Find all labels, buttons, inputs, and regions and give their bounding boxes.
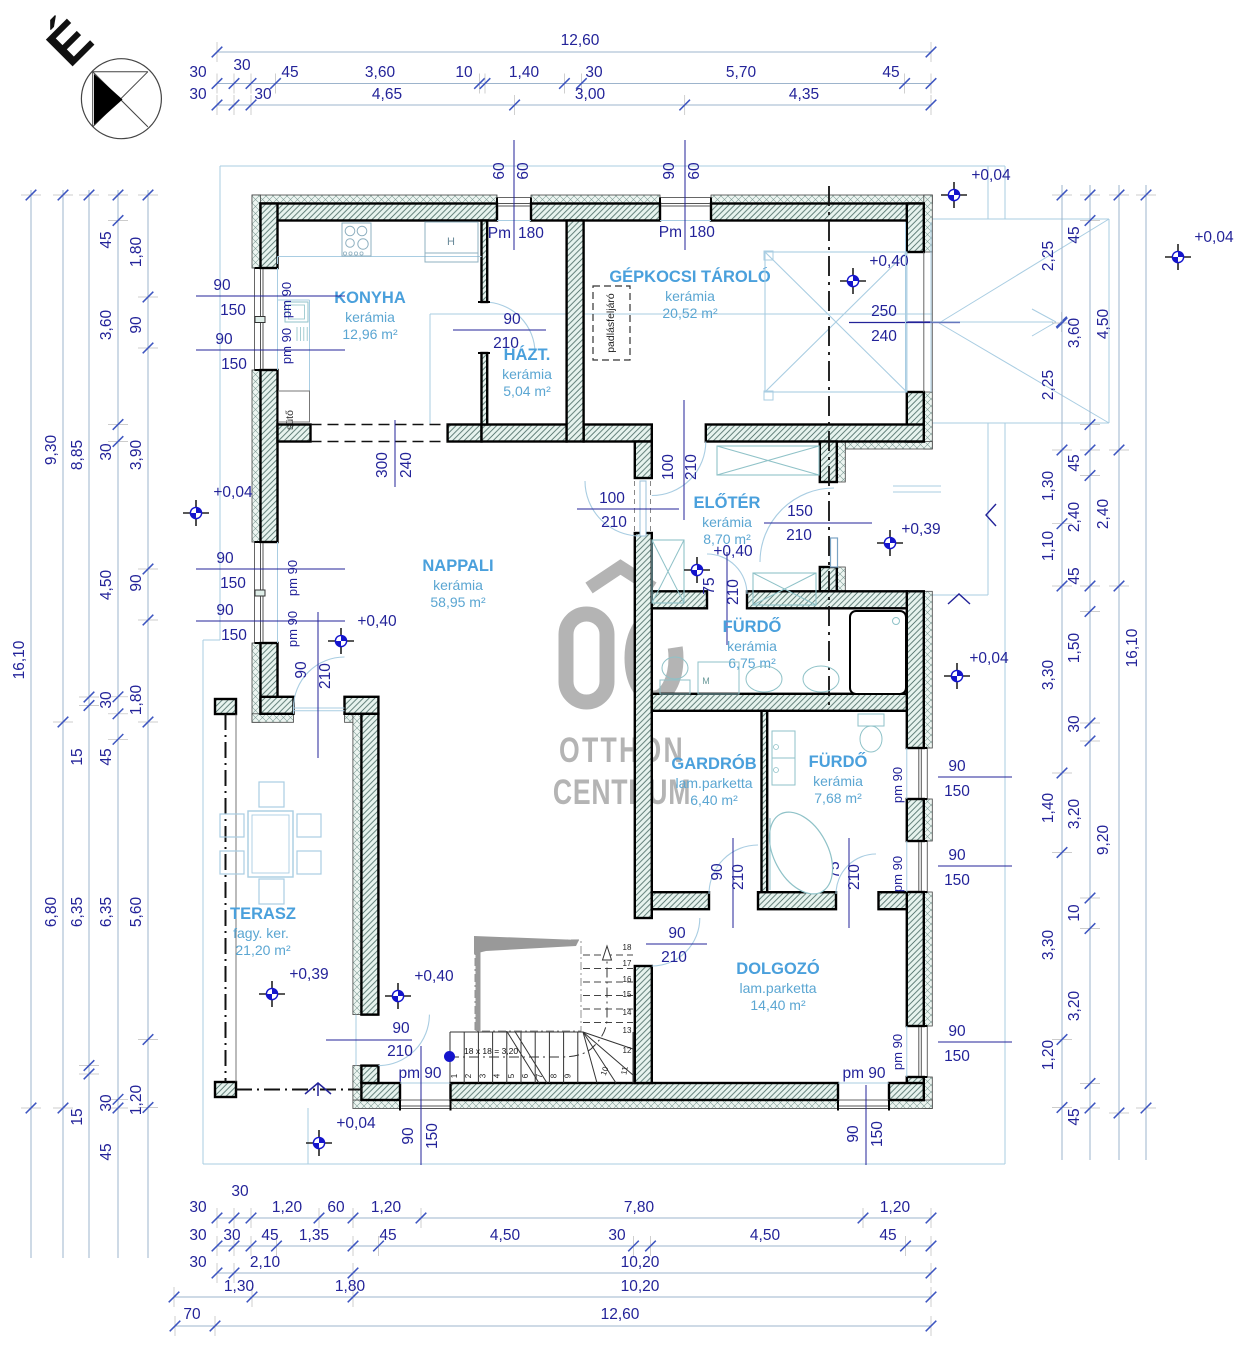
- svg-text:1,40: 1,40: [509, 64, 540, 81]
- svg-text:16,10: 16,10: [1124, 628, 1141, 667]
- svg-text:150: 150: [424, 1123, 441, 1149]
- svg-text:90: 90: [661, 162, 678, 180]
- svg-text:14,40 m²: 14,40 m²: [750, 997, 806, 1013]
- svg-text:45: 45: [1066, 226, 1083, 243]
- svg-text:58,95 m²: 58,95 m²: [430, 594, 486, 610]
- svg-text:2,40: 2,40: [1095, 499, 1112, 530]
- svg-text:15: 15: [69, 1108, 86, 1125]
- svg-text:+0,04: +0,04: [1194, 229, 1234, 246]
- svg-text:pm 90: pm 90: [285, 560, 300, 596]
- svg-text:4,50: 4,50: [1095, 309, 1112, 340]
- svg-text:90: 90: [128, 316, 145, 334]
- svg-text:kerámia: kerámia: [502, 366, 552, 382]
- svg-text:1,20: 1,20: [880, 1199, 911, 1216]
- svg-text:90: 90: [503, 311, 521, 328]
- svg-text:45: 45: [1066, 567, 1083, 584]
- svg-text:12,60: 12,60: [601, 1306, 640, 1323]
- svg-text:100: 100: [660, 454, 677, 480]
- svg-text:45: 45: [379, 1227, 396, 1244]
- svg-text:90: 90: [668, 925, 686, 942]
- svg-text:90: 90: [293, 661, 310, 679]
- svg-text:30: 30: [223, 1227, 241, 1244]
- svg-text:90: 90: [215, 331, 233, 348]
- svg-text:+0,40: +0,40: [713, 543, 753, 560]
- svg-text:45: 45: [98, 1143, 115, 1160]
- svg-text:60: 60: [491, 162, 508, 180]
- svg-text:210: 210: [846, 864, 863, 890]
- svg-text:15: 15: [69, 748, 86, 765]
- svg-text:300: 300: [374, 452, 391, 478]
- svg-text:1,50: 1,50: [1066, 633, 1083, 664]
- svg-text:+0,40: +0,40: [869, 253, 909, 270]
- svg-text:90: 90: [128, 574, 145, 592]
- svg-text:HÁZT.: HÁZT.: [504, 345, 551, 364]
- svg-text:3,90: 3,90: [128, 440, 145, 471]
- svg-text:2,40: 2,40: [1066, 502, 1083, 533]
- svg-text:kerámia: kerámia: [727, 638, 777, 654]
- svg-text:1,20: 1,20: [371, 1199, 402, 1216]
- svg-text:30: 30: [233, 57, 251, 74]
- svg-text:90: 90: [213, 277, 231, 294]
- svg-text:7,80: 7,80: [624, 1199, 655, 1216]
- svg-text:30: 30: [189, 1199, 207, 1216]
- svg-text:10,20: 10,20: [621, 1278, 660, 1295]
- svg-text:60: 60: [686, 162, 703, 180]
- svg-text:fagy. ker.: fagy. ker.: [233, 925, 289, 941]
- svg-text:30: 30: [98, 691, 115, 709]
- svg-text:5: 5: [507, 1073, 516, 1078]
- svg-text:sütő: sütő: [284, 410, 296, 430]
- svg-text:CENTRUM: CENTRUM: [553, 772, 691, 811]
- svg-text:3: 3: [478, 1073, 487, 1078]
- svg-text:kerámia: kerámia: [665, 288, 715, 304]
- svg-text:1,80: 1,80: [335, 1278, 366, 1295]
- svg-text:90: 90: [400, 1127, 417, 1145]
- svg-text:lam.parketta: lam.parketta: [675, 775, 752, 791]
- svg-text:1,20: 1,20: [272, 1199, 303, 1216]
- svg-text:45: 45: [882, 64, 899, 81]
- svg-text:90: 90: [948, 1023, 966, 1040]
- svg-text:240: 240: [871, 328, 897, 345]
- svg-text:4,50: 4,50: [750, 1227, 781, 1244]
- svg-text:30: 30: [1066, 715, 1083, 733]
- svg-text:NAPPALI: NAPPALI: [422, 557, 493, 575]
- svg-text:6,35: 6,35: [69, 897, 86, 927]
- svg-text:pm 90: pm 90: [890, 856, 905, 892]
- svg-text:3,20: 3,20: [1066, 991, 1083, 1022]
- svg-text:3,00: 3,00: [575, 86, 606, 103]
- svg-text:3,30: 3,30: [1040, 660, 1057, 691]
- svg-text:pm 90: pm 90: [279, 282, 294, 318]
- svg-text:210: 210: [725, 579, 742, 605]
- svg-text:pm 90: pm 90: [285, 611, 300, 647]
- svg-text:4: 4: [493, 1073, 502, 1078]
- svg-text:10,20: 10,20: [621, 1254, 660, 1271]
- svg-text:30: 30: [585, 64, 603, 81]
- svg-text:45: 45: [261, 1227, 278, 1244]
- svg-text:90: 90: [948, 758, 966, 775]
- svg-text:ELŐTÉR: ELŐTÉR: [694, 493, 761, 512]
- svg-text:kerámia: kerámia: [433, 577, 483, 593]
- svg-text:+0,40: +0,40: [357, 613, 397, 630]
- svg-text:16,10: 16,10: [11, 640, 28, 679]
- svg-text:45: 45: [1066, 1108, 1083, 1125]
- svg-text:+0,39: +0,39: [901, 521, 940, 538]
- svg-text:4,50: 4,50: [490, 1227, 521, 1244]
- svg-text:60: 60: [327, 1199, 345, 1216]
- svg-text:1,20: 1,20: [1040, 1040, 1057, 1071]
- svg-text:H: H: [447, 236, 455, 248]
- svg-text:1,80: 1,80: [128, 237, 145, 268]
- svg-text:150: 150: [944, 1048, 970, 1065]
- svg-text:kerámia: kerámia: [345, 309, 395, 325]
- svg-text:240: 240: [398, 452, 415, 478]
- svg-text:1,80: 1,80: [128, 685, 145, 716]
- svg-text:KONYHA: KONYHA: [334, 289, 406, 307]
- svg-text:150: 150: [221, 627, 247, 644]
- svg-text:1,30: 1,30: [224, 1278, 255, 1295]
- svg-text:1,35: 1,35: [299, 1227, 329, 1244]
- svg-text:kerámia: kerámia: [702, 514, 752, 530]
- svg-text:30: 30: [98, 1094, 115, 1112]
- svg-text:1,20: 1,20: [128, 1085, 145, 1116]
- svg-text:DOLGOZÓ: DOLGOZÓ: [736, 959, 820, 978]
- svg-text:210: 210: [317, 663, 334, 689]
- svg-text:30: 30: [98, 443, 115, 461]
- svg-text:20,52 m²: 20,52 m²: [662, 305, 718, 321]
- svg-text:60: 60: [515, 162, 532, 180]
- svg-text:OTTHON: OTTHON: [559, 730, 685, 769]
- svg-text:70: 70: [183, 1306, 201, 1323]
- svg-text:5,70: 5,70: [726, 64, 757, 81]
- svg-text:180: 180: [689, 224, 715, 241]
- svg-text:9,30: 9,30: [43, 435, 60, 466]
- svg-text:150: 150: [787, 503, 813, 520]
- svg-text:250: 250: [871, 303, 897, 320]
- svg-text:45: 45: [98, 748, 115, 765]
- svg-text:90: 90: [845, 1125, 862, 1143]
- svg-text:GÉPKOCSI TÁROLÓ: GÉPKOCSI TÁROLÓ: [609, 267, 771, 286]
- svg-text:+0,04: +0,04: [213, 484, 253, 501]
- svg-text:30: 30: [608, 1227, 626, 1244]
- svg-text:6,75 m²: 6,75 m²: [728, 655, 776, 671]
- svg-text:210: 210: [730, 864, 747, 890]
- svg-text:30: 30: [254, 86, 272, 103]
- svg-text:7,68 m²: 7,68 m²: [814, 790, 862, 806]
- svg-text:90: 90: [392, 1020, 410, 1037]
- svg-text:15: 15: [623, 990, 632, 999]
- svg-text:FÜRDŐ: FÜRDŐ: [723, 617, 782, 636]
- svg-text:9: 9: [564, 1073, 573, 1078]
- svg-text:6,35: 6,35: [98, 897, 115, 927]
- svg-text:210: 210: [387, 1043, 413, 1060]
- svg-text:150: 150: [220, 302, 246, 319]
- svg-text:pm 90: pm 90: [279, 328, 294, 364]
- svg-text:210: 210: [661, 949, 687, 966]
- svg-text:150: 150: [944, 783, 970, 800]
- svg-text:10: 10: [1066, 904, 1083, 922]
- svg-text:12,60: 12,60: [561, 32, 600, 49]
- svg-text:75: 75: [701, 577, 718, 594]
- svg-text:+0,04: +0,04: [336, 1115, 376, 1132]
- svg-text:30: 30: [189, 64, 207, 81]
- svg-text:150: 150: [221, 356, 247, 373]
- svg-text:16: 16: [623, 975, 632, 984]
- svg-text:pm 90: pm 90: [890, 767, 905, 803]
- svg-text:pm 90: pm 90: [842, 1065, 885, 1082]
- svg-text:12,96 m²: 12,96 m²: [342, 326, 398, 342]
- svg-text:pm 90: pm 90: [398, 1065, 441, 1082]
- svg-text:3,20: 3,20: [1066, 799, 1083, 830]
- svg-text:90: 90: [216, 550, 234, 567]
- svg-text:21,20 m²: 21,20 m²: [235, 942, 291, 958]
- svg-text:1,10: 1,10: [1040, 531, 1057, 562]
- svg-text:6,80: 6,80: [43, 897, 60, 928]
- svg-text:30: 30: [189, 86, 207, 103]
- svg-text:lam.parketta: lam.parketta: [739, 980, 816, 996]
- svg-text:8: 8: [549, 1073, 558, 1078]
- svg-text:13: 13: [623, 1026, 632, 1035]
- svg-text:1: 1: [450, 1073, 459, 1078]
- svg-text:18: 18: [623, 943, 632, 952]
- svg-text:6: 6: [521, 1073, 530, 1078]
- svg-text:210: 210: [786, 527, 812, 544]
- svg-text:TERASZ: TERASZ: [230, 905, 296, 923]
- svg-text:+0,04: +0,04: [971, 167, 1011, 184]
- svg-text:padlásfeljáró: padlásfeljáró: [605, 293, 617, 353]
- svg-text:4,35: 4,35: [789, 86, 819, 103]
- svg-text:5,04 m²: 5,04 m²: [503, 383, 551, 399]
- svg-text:14: 14: [623, 1008, 632, 1017]
- svg-text:90: 90: [216, 602, 234, 619]
- svg-text:4,65: 4,65: [372, 86, 402, 103]
- svg-text:kerámia: kerámia: [813, 773, 863, 789]
- svg-text:Pm: Pm: [488, 225, 511, 242]
- svg-text:100: 100: [599, 490, 625, 507]
- svg-text:1,40: 1,40: [1040, 793, 1057, 824]
- svg-text:GARDRÓB: GARDRÓB: [671, 754, 756, 773]
- svg-text:90: 90: [948, 847, 966, 864]
- svg-text:90: 90: [709, 863, 726, 881]
- svg-text:6,40 m²: 6,40 m²: [690, 792, 738, 808]
- svg-text:210: 210: [601, 514, 627, 531]
- svg-text:30: 30: [189, 1254, 207, 1271]
- svg-text:45: 45: [281, 64, 298, 81]
- svg-text:3,60: 3,60: [98, 310, 115, 341]
- svg-text:9,20: 9,20: [1095, 825, 1112, 856]
- svg-text:45: 45: [98, 231, 115, 248]
- svg-text:150: 150: [869, 1121, 886, 1147]
- svg-text:45: 45: [1066, 454, 1083, 471]
- svg-text:4,50: 4,50: [98, 570, 115, 601]
- svg-text:2: 2: [464, 1073, 473, 1078]
- svg-text:30: 30: [189, 1227, 207, 1244]
- svg-text:18 x 18 = 3,20: 18 x 18 = 3,20: [464, 1046, 518, 1056]
- svg-text:2,10: 2,10: [250, 1254, 281, 1271]
- svg-text:2,25: 2,25: [1040, 370, 1057, 400]
- svg-text:pm 90: pm 90: [890, 1034, 905, 1070]
- svg-text:150: 150: [220, 575, 246, 592]
- svg-text:Pm: Pm: [659, 224, 682, 241]
- svg-text:5,60: 5,60: [128, 897, 145, 928]
- svg-text:12: 12: [623, 1046, 632, 1055]
- svg-text:3,60: 3,60: [365, 64, 396, 81]
- svg-text:210: 210: [683, 454, 700, 480]
- svg-text:FÜRDŐ: FÜRDŐ: [809, 752, 868, 771]
- svg-text:3,30: 3,30: [1040, 930, 1057, 961]
- svg-text:+0,40: +0,40: [414, 968, 454, 985]
- svg-text:8,85: 8,85: [69, 440, 86, 470]
- svg-text:M: M: [702, 676, 710, 686]
- svg-text:45: 45: [879, 1227, 896, 1244]
- svg-text:+0,04: +0,04: [969, 650, 1009, 667]
- svg-text:+0,39: +0,39: [289, 966, 328, 983]
- svg-text:10: 10: [455, 64, 473, 81]
- svg-text:30: 30: [231, 1183, 249, 1200]
- svg-text:2,25: 2,25: [1040, 241, 1057, 271]
- svg-text:17: 17: [623, 959, 632, 968]
- svg-text:150: 150: [944, 872, 970, 889]
- svg-text:1,30: 1,30: [1040, 471, 1057, 502]
- svg-text:3,60: 3,60: [1066, 318, 1083, 349]
- svg-text:180: 180: [518, 225, 544, 242]
